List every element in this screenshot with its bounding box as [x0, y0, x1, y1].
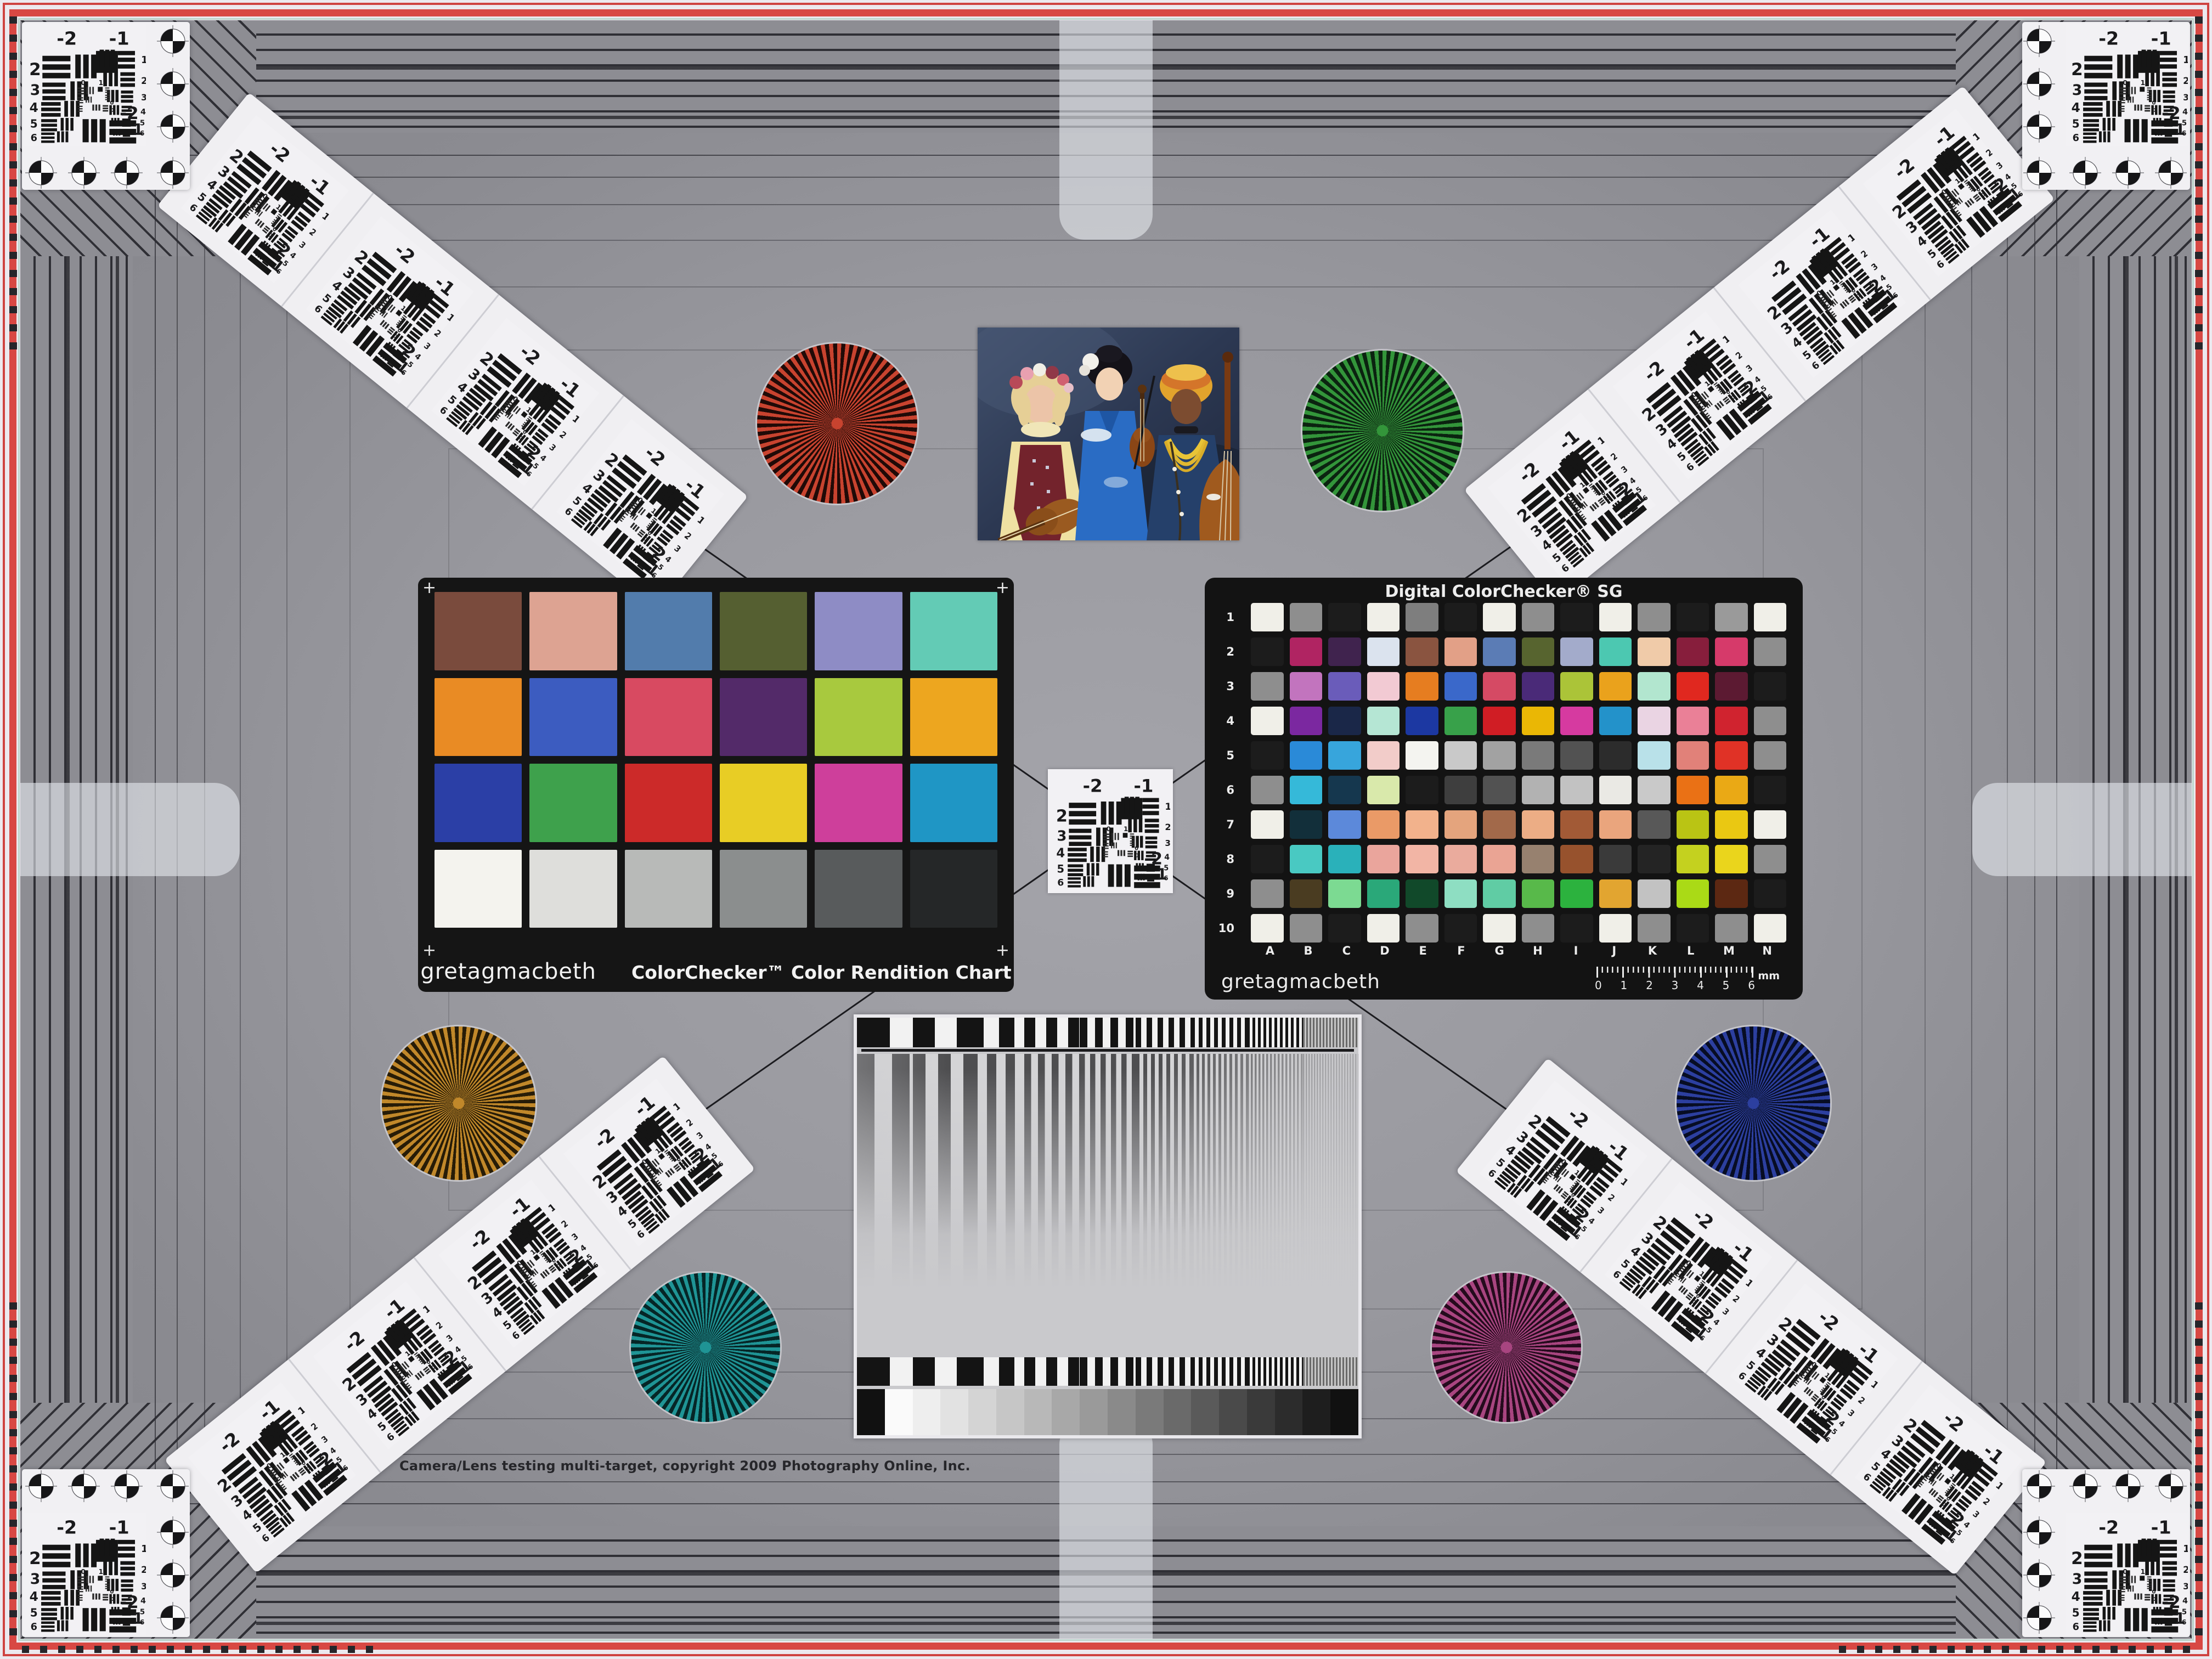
label: J: [1595, 944, 1633, 957]
color-patch: [1367, 810, 1400, 839]
color-patch: [1367, 603, 1400, 631]
color-patch: [1522, 741, 1555, 770]
color-patch: [1599, 810, 1632, 839]
sine-sweep-area: [857, 1054, 1358, 1355]
color-patch: [1328, 879, 1361, 908]
color-patch: [1367, 637, 1400, 666]
registration-circle-icon: [2023, 111, 2055, 143]
siemens-star-blue: [1677, 1026, 1830, 1180]
color-patch: [1677, 845, 1709, 873]
label: F: [1442, 944, 1481, 957]
resolution-target-icon: [24, 24, 146, 146]
registration-circle-icon: [2023, 25, 2055, 57]
color-patch: [815, 764, 902, 842]
label: 5: [1214, 741, 1239, 770]
color-patch: [1483, 879, 1516, 908]
color-patch: [1247, 1389, 1275, 1435]
color-patch: [1290, 741, 1323, 770]
color-patch: [1406, 637, 1438, 666]
color-patch: [1444, 914, 1477, 943]
siemens-star-teal: [631, 1273, 780, 1422]
registration-circle-icon: [157, 1516, 189, 1548]
color-patch: [1483, 672, 1516, 701]
square-wave-strip-bottom: [857, 1357, 1358, 1386]
registration-circle-icon: [157, 111, 189, 143]
color-patch: [1599, 845, 1632, 873]
divider-line: [861, 1049, 1354, 1052]
color-patch: [1483, 810, 1516, 839]
label: 9: [1214, 879, 1239, 908]
corner-target-card-top-left: [22, 22, 190, 190]
color-patch: [885, 1389, 913, 1435]
color-patch: [1483, 707, 1516, 735]
color-patch: [1483, 603, 1516, 631]
color-patch: [1677, 879, 1709, 908]
ruler-ticks: [1596, 967, 1753, 978]
label: 6: [1748, 979, 1755, 992]
label: 3: [1214, 672, 1239, 701]
color-patch: [1638, 672, 1671, 701]
color-patch: [1108, 1389, 1136, 1435]
color-patch: [1677, 672, 1709, 701]
photo-three-musicians: [978, 328, 1239, 540]
color-patch: [1367, 707, 1400, 735]
color-patch: [1599, 637, 1632, 666]
color-patch: [720, 764, 807, 842]
color-patch: [1444, 741, 1477, 770]
color-patch: [1677, 707, 1709, 735]
color-patch: [1715, 879, 1748, 908]
color-patch: [720, 850, 807, 928]
color-patch: [1406, 776, 1438, 804]
color-patch: [1638, 707, 1671, 735]
color-patch: [940, 1389, 968, 1435]
color-patch: [1406, 672, 1438, 701]
label: M: [1710, 944, 1748, 957]
color-patch: [435, 678, 522, 757]
color-patch: [1638, 603, 1671, 631]
label: I: [1557, 944, 1595, 957]
sg-column-labels: ABCDEFGHIJKLMN: [1251, 944, 1786, 957]
color-patch: [1522, 776, 1555, 804]
color-patch: [625, 764, 712, 842]
color-patch: [857, 1389, 885, 1435]
brand-label: gretagmacbeth: [1221, 970, 1380, 993]
label: D: [1365, 944, 1404, 957]
frequency-sweep-chart: [854, 1014, 1362, 1438]
label: 4: [1214, 707, 1239, 735]
color-patch: [1754, 707, 1787, 735]
color-patch: [1251, 879, 1284, 908]
label: 2: [1646, 979, 1653, 992]
label: 7: [1214, 810, 1239, 839]
label: H: [1519, 944, 1557, 957]
color-patch: [1754, 637, 1787, 666]
color-patch: [1406, 741, 1438, 770]
color-patch: [1599, 776, 1632, 804]
color-patch: [968, 1389, 996, 1435]
color-patch: [1444, 810, 1477, 839]
color-patch: [1483, 776, 1516, 804]
label: B: [1289, 944, 1328, 957]
color-patch: [1219, 1389, 1247, 1435]
registration-circle-icon: [111, 157, 143, 189]
color-patch: [1444, 845, 1477, 873]
colorchecker-classic-chart: + + + + gretagmacbeth ColorChecker™ Colo…: [418, 578, 1014, 992]
color-patch: [1522, 637, 1555, 666]
chart-name-label: ColorChecker™ Color Rendition Chart: [631, 962, 1012, 983]
color-patch: [1560, 707, 1593, 735]
color-patch: [1251, 741, 1284, 770]
color-patch: [1251, 914, 1284, 943]
color-patch: [1164, 1389, 1192, 1435]
color-patch: [435, 592, 522, 670]
color-patch: [1754, 672, 1787, 701]
label: 4: [1697, 979, 1704, 992]
color-patch: [1251, 603, 1284, 631]
color-patch: [815, 592, 902, 670]
registration-circle-icon: [2023, 1602, 2055, 1634]
label: 5: [1723, 979, 1730, 992]
color-patch: [910, 764, 997, 842]
color-patch: [1444, 603, 1477, 631]
color-patch: [1024, 1389, 1052, 1435]
registration-circle-icon: [25, 1470, 57, 1502]
sg-title: Digital ColorChecker® SG: [1205, 582, 1803, 601]
color-patch: [720, 592, 807, 670]
color-patch: [1251, 845, 1284, 873]
color-patch: [1406, 914, 1438, 943]
color-patch: [1251, 637, 1284, 666]
colorchecker-classic-patch-grid: [435, 592, 997, 928]
brand-label: gretagmacbeth: [420, 959, 596, 984]
color-patch: [1406, 810, 1438, 839]
color-patch: [1560, 845, 1593, 873]
color-patch: [435, 850, 522, 928]
color-patch: [1367, 879, 1400, 908]
color-patch: [1328, 845, 1361, 873]
copyright-text: Camera/Lens testing multi-target, copyri…: [399, 1458, 970, 1474]
registration-circle-icon: [2023, 1516, 2055, 1548]
colorchecker-sg-chart: Digital ColorChecker® SG 12345678910 ABC…: [1205, 578, 1803, 1000]
colorchecker-sg-patch-grid: [1251, 603, 1786, 943]
color-patch: [1444, 637, 1477, 666]
color-patch: [1483, 637, 1516, 666]
color-patch: [1677, 810, 1709, 839]
color-patch: [1677, 914, 1709, 943]
color-patch: [1638, 914, 1671, 943]
registration-circle-icon: [2069, 1470, 2101, 1502]
registration-circle-icon: [2155, 157, 2187, 189]
color-patch: [1677, 741, 1709, 770]
color-patch: [1444, 879, 1477, 908]
label: 8: [1214, 845, 1239, 873]
square-wave-strip-top: [857, 1018, 1358, 1047]
color-patch: [1290, 707, 1323, 735]
color-patch: [1715, 741, 1748, 770]
color-patch: [1677, 637, 1709, 666]
registration-circle-icon: [2023, 68, 2055, 100]
color-patch: [1191, 1389, 1219, 1435]
color-patch: [1560, 776, 1593, 804]
color-patch: [1638, 845, 1671, 873]
color-patch: [1406, 707, 1438, 735]
corner-target-card-bottom-left: [22, 1469, 190, 1637]
label: 0: [1595, 979, 1602, 992]
center-resolution-target: [1048, 769, 1173, 893]
registration-circle-icon: [157, 25, 189, 57]
color-patch: [1328, 637, 1361, 666]
label: 1: [1621, 979, 1628, 992]
color-patch: [1754, 810, 1787, 839]
registration-circle-icon: [157, 1470, 189, 1502]
color-patch: [1367, 741, 1400, 770]
label: 10: [1214, 914, 1239, 943]
color-patch: [910, 850, 997, 928]
color-patch: [1560, 603, 1593, 631]
color-patch: [1290, 637, 1323, 666]
color-patch: [1290, 603, 1323, 631]
registration-circle-icon: [157, 1559, 189, 1591]
sg-row-labels: 12345678910: [1214, 603, 1239, 943]
color-patch: [1560, 810, 1593, 839]
color-patch: [1560, 914, 1593, 943]
color-patch: [1328, 672, 1361, 701]
color-patch: [1715, 672, 1748, 701]
color-patch: [1715, 637, 1748, 666]
registration-circle-icon: [25, 157, 57, 189]
label: K: [1633, 944, 1672, 957]
color-patch: [1275, 1389, 1303, 1435]
color-patch: [1444, 707, 1477, 735]
color-patch: [1290, 810, 1323, 839]
registration-circle-icon: [2112, 1470, 2144, 1502]
label: L: [1672, 944, 1710, 957]
siemens-star-magenta: [1432, 1273, 1581, 1422]
color-patch: [1483, 914, 1516, 943]
label: 3: [1672, 979, 1679, 992]
registration-circle-icon: [2112, 157, 2144, 189]
color-patch: [1367, 776, 1400, 804]
color-patch: [1599, 603, 1632, 631]
grayscale-step-wedge: [857, 1389, 1358, 1435]
color-patch: [1290, 776, 1323, 804]
registration-circle-icon: [2023, 157, 2055, 189]
color-patch: [1136, 1389, 1164, 1435]
color-patch: [1715, 845, 1748, 873]
contrast-fade-overlay: [857, 1054, 1358, 1355]
test-chart-page: + + + + gretagmacbeth ColorChecker™ Colo…: [0, 0, 2212, 1659]
color-patch: [1522, 707, 1555, 735]
color-patch: [1251, 672, 1284, 701]
color-patch: [625, 592, 712, 670]
color-patch: [1522, 672, 1555, 701]
color-patch: [1406, 845, 1438, 873]
color-patch: [1251, 776, 1284, 804]
siemens-star-gold: [382, 1026, 535, 1180]
colorchecker-classic-label: gretagmacbeth ColorChecker™ Color Rendit…: [418, 959, 1014, 984]
siemens-star-green: [1302, 351, 1463, 511]
color-patch: [1560, 672, 1593, 701]
color-patch: [1754, 741, 1787, 770]
label: 2: [1214, 637, 1239, 666]
color-patch: [1638, 879, 1671, 908]
label: N: [1748, 944, 1786, 957]
color-patch: [1444, 672, 1477, 701]
ruler-unit: mm: [1758, 970, 1780, 982]
color-patch: [529, 592, 617, 670]
registration-circle-icon: [2023, 1470, 2055, 1502]
color-patch: [1328, 776, 1361, 804]
color-patch: [1330, 1389, 1358, 1435]
color-patch: [1328, 914, 1361, 943]
color-patch: [1715, 810, 1748, 839]
color-patch: [529, 850, 617, 928]
registration-circle-icon: [68, 1470, 100, 1502]
color-patch: [1328, 810, 1361, 839]
registration-circle-icon: [157, 157, 189, 189]
color-patch: [1290, 672, 1323, 701]
color-patch: [1522, 879, 1555, 908]
registration-circle-icon: [111, 1470, 143, 1502]
color-patch: [1560, 741, 1593, 770]
ruler-numbers: 0123456: [1595, 979, 1755, 992]
color-patch: [625, 678, 712, 757]
color-patch: [1290, 845, 1323, 873]
color-patch: [625, 850, 712, 928]
color-patch: [1754, 603, 1787, 631]
mm-ruler: 0123456 mm: [1596, 967, 1783, 992]
color-patch: [1560, 637, 1593, 666]
color-patch: [815, 850, 902, 928]
color-patch: [1599, 707, 1632, 735]
resolution-target-icon: [1051, 772, 1170, 890]
color-patch: [1754, 776, 1787, 804]
registration-circle-icon: [2155, 1470, 2187, 1502]
color-patch: [529, 678, 617, 757]
color-patch: [529, 764, 617, 842]
color-patch: [1754, 879, 1787, 908]
color-patch: [1522, 603, 1555, 631]
registration-circle-icon: [68, 157, 100, 189]
color-patch: [1677, 603, 1709, 631]
color-patch: [1483, 741, 1516, 770]
color-patch: [1367, 914, 1400, 943]
corner-target-card-top-right: [2022, 22, 2190, 190]
color-patch: [1522, 845, 1555, 873]
color-patch: [815, 678, 902, 757]
color-patch: [1052, 1389, 1080, 1435]
corner-mark: +: [422, 943, 436, 959]
color-patch: [1599, 741, 1632, 770]
registration-circle-icon: [2023, 1559, 2055, 1591]
color-patch: [1522, 810, 1555, 839]
label: C: [1327, 944, 1365, 957]
label: G: [1480, 944, 1519, 957]
color-patch: [1367, 845, 1400, 873]
color-patch: [1251, 810, 1284, 839]
corner-mark: +: [996, 943, 1009, 959]
registration-circle-icon: [157, 1602, 189, 1634]
color-patch: [1715, 707, 1748, 735]
color-patch: [1483, 845, 1516, 873]
siemens-star-red: [757, 343, 917, 504]
color-patch: [910, 592, 997, 670]
color-patch: [1328, 741, 1361, 770]
color-patch: [1406, 879, 1438, 908]
resolution-target-icon: [2066, 1513, 2188, 1635]
color-patch: [1638, 741, 1671, 770]
color-patch: [1444, 776, 1477, 804]
color-patch: [1328, 603, 1361, 631]
registration-circle-icon: [2069, 157, 2101, 189]
color-patch: [1754, 845, 1787, 873]
color-patch: [1599, 672, 1632, 701]
color-patch: [720, 678, 807, 757]
label: 6: [1214, 776, 1239, 804]
label: A: [1251, 944, 1289, 957]
color-patch: [1599, 879, 1632, 908]
color-patch: [1638, 637, 1671, 666]
color-patch: [1677, 776, 1709, 804]
color-patch: [1290, 914, 1323, 943]
color-patch: [1638, 776, 1671, 804]
color-patch: [1251, 707, 1284, 735]
corner-mark: +: [996, 580, 1009, 596]
label: E: [1404, 944, 1442, 957]
color-patch: [1302, 1389, 1330, 1435]
color-patch: [996, 1389, 1024, 1435]
color-patch: [1367, 672, 1400, 701]
corner-target-card-bottom-right: [2022, 1469, 2190, 1637]
registration-circle-icon: [157, 68, 189, 100]
color-patch: [1715, 914, 1748, 943]
resolution-target-icon: [2066, 24, 2188, 146]
color-patch: [1406, 603, 1438, 631]
color-patch: [435, 764, 522, 842]
color-patch: [1715, 603, 1748, 631]
color-patch: [1560, 879, 1593, 908]
color-patch: [1522, 914, 1555, 943]
color-patch: [913, 1389, 941, 1435]
color-patch: [1328, 707, 1361, 735]
color-patch: [1754, 914, 1787, 943]
resolution-target-icon: [24, 1513, 146, 1635]
label: 1: [1214, 603, 1239, 631]
color-patch: [1080, 1389, 1108, 1435]
color-patch: [910, 678, 997, 757]
color-patch: [1290, 879, 1323, 908]
color-patch: [1599, 914, 1632, 943]
color-patch: [1715, 776, 1748, 804]
color-patch: [1638, 810, 1671, 839]
